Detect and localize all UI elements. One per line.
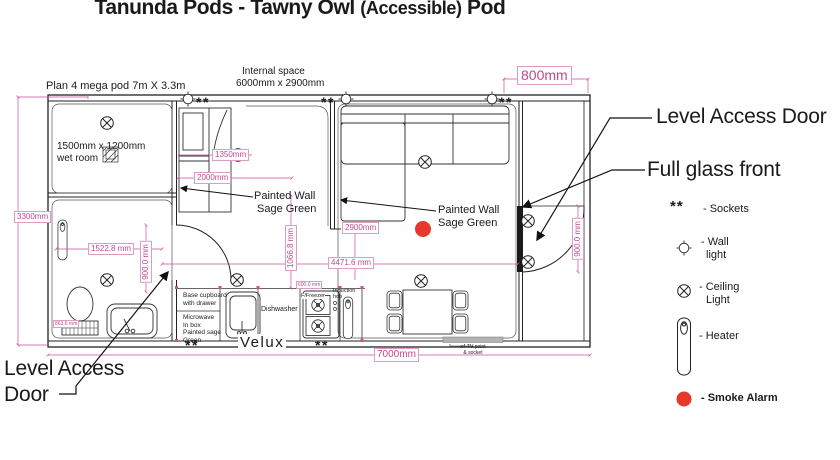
ceiling-lights — [101, 117, 535, 288]
ceiling-light-icon — [415, 275, 428, 288]
heater-icon — [343, 297, 352, 339]
dim-bath-door: 900.0 mm — [140, 241, 152, 283]
dishwasher-label: Dishwasher — [261, 306, 298, 314]
dim-counter: 600.0 mm — [296, 281, 322, 289]
full-glass-front-annotation: Full glass front — [647, 158, 780, 182]
wet-room-label: 1500mm x 1200mm wet room — [57, 141, 145, 165]
legend-wall-light-label: - Wall light — [701, 236, 729, 262]
ceiling-light-icon — [678, 285, 691, 298]
painted-wall-label-2: Painted Wall Sage Green — [438, 204, 499, 230]
plan-label: Plan 4 mega pod 7m X 3.3m — [46, 80, 185, 93]
chair-icon — [387, 291, 402, 310]
dim-left-height: 3300mm — [14, 211, 51, 223]
legend-sockets-symbol: ** — [670, 198, 684, 215]
dim-wardrobe-width: 2000mm — [194, 172, 231, 184]
microwave-label: Microwave In box Painted sage Green — [183, 314, 221, 344]
ceiling-light-icon — [101, 274, 114, 287]
legend-icons — [677, 241, 692, 407]
smoke-alarm-icon — [677, 392, 692, 407]
smoke-alarm-icon — [415, 221, 431, 237]
base-cupboard-label: Base cupboard with drawer — [183, 292, 227, 307]
dim-hall: 1066.8 mm — [285, 225, 297, 271]
ceiling-light-icon — [101, 117, 114, 130]
wall-light-icon — [181, 92, 196, 107]
title-pod: Pod — [462, 0, 506, 19]
painted-wall-label-1: Painted Wall Sage Green — [254, 190, 316, 216]
ceiling-light-icon — [419, 156, 432, 169]
chair-icon — [387, 314, 402, 333]
kitchen-sink — [226, 292, 260, 338]
ceiling-light-icon — [231, 274, 244, 287]
induction-hob-label: Induction hob — [333, 288, 355, 300]
wall-light-icon — [677, 241, 692, 256]
dim-living-width: 4471.6 mm — [328, 257, 374, 269]
socket-symbol: ** — [499, 94, 513, 110]
ceiling-light-icon — [522, 256, 535, 269]
heater-icon — [58, 220, 67, 260]
bathroom-door — [176, 225, 231, 280]
title-main: Tanunda Pods - Tawny Owl — [95, 0, 361, 19]
socket-symbol: ** — [321, 94, 335, 110]
level-access-door-annotation: Level Access Door — [656, 105, 827, 129]
socket-symbol: ** — [315, 337, 329, 353]
dim-entry-door: 900.0 mm — [572, 218, 584, 260]
legend-smoke-alarm-label: - Smoke Alarm — [701, 392, 778, 404]
dim-bath-width: 1522.8 mm — [88, 243, 134, 255]
legend-heater-label: - Heater — [699, 330, 739, 343]
dining-set — [387, 290, 468, 334]
dim-porch-width: 800mm — [517, 66, 572, 85]
legend-sockets-label: - Sockets — [703, 203, 749, 216]
freezer-label: F/Freezer — [301, 293, 325, 299]
bathroom-sink — [107, 304, 157, 338]
chair-icon — [453, 314, 468, 333]
tv-point-label: x4 TV point & socket — [452, 344, 494, 356]
ceiling-light-icon — [522, 215, 535, 228]
heater-icon — [678, 318, 691, 375]
socket-symbol: ** — [196, 94, 210, 110]
floor-plan-page: Tanunda Pods - Tawny Owl (Accessible) Po… — [0, 0, 840, 460]
internal-space-label: Internal space 6000mm x 2900mm — [236, 66, 324, 90]
legend-ceiling-light-label: - Ceiling Light — [699, 281, 739, 307]
velux-label: Velux — [238, 334, 286, 351]
level-access-annotation-line1: Level Access — [4, 357, 124, 381]
dim-toilet-offset: 863.6 mm — [53, 320, 79, 328]
dim-closet: 1350mm — [212, 149, 249, 161]
title-accessible: (Accessible) — [360, 0, 461, 18]
floor-plan-drawing — [0, 0, 840, 460]
page-title: Tanunda Pods - Tawny Owl (Accessible) Po… — [60, 0, 540, 20]
dim-total-width: 7000mm — [374, 348, 419, 362]
dim-living-height: 2900mm — [342, 222, 379, 234]
chair-icon — [453, 291, 468, 310]
level-access-annotation-line2: Door — [4, 383, 49, 407]
